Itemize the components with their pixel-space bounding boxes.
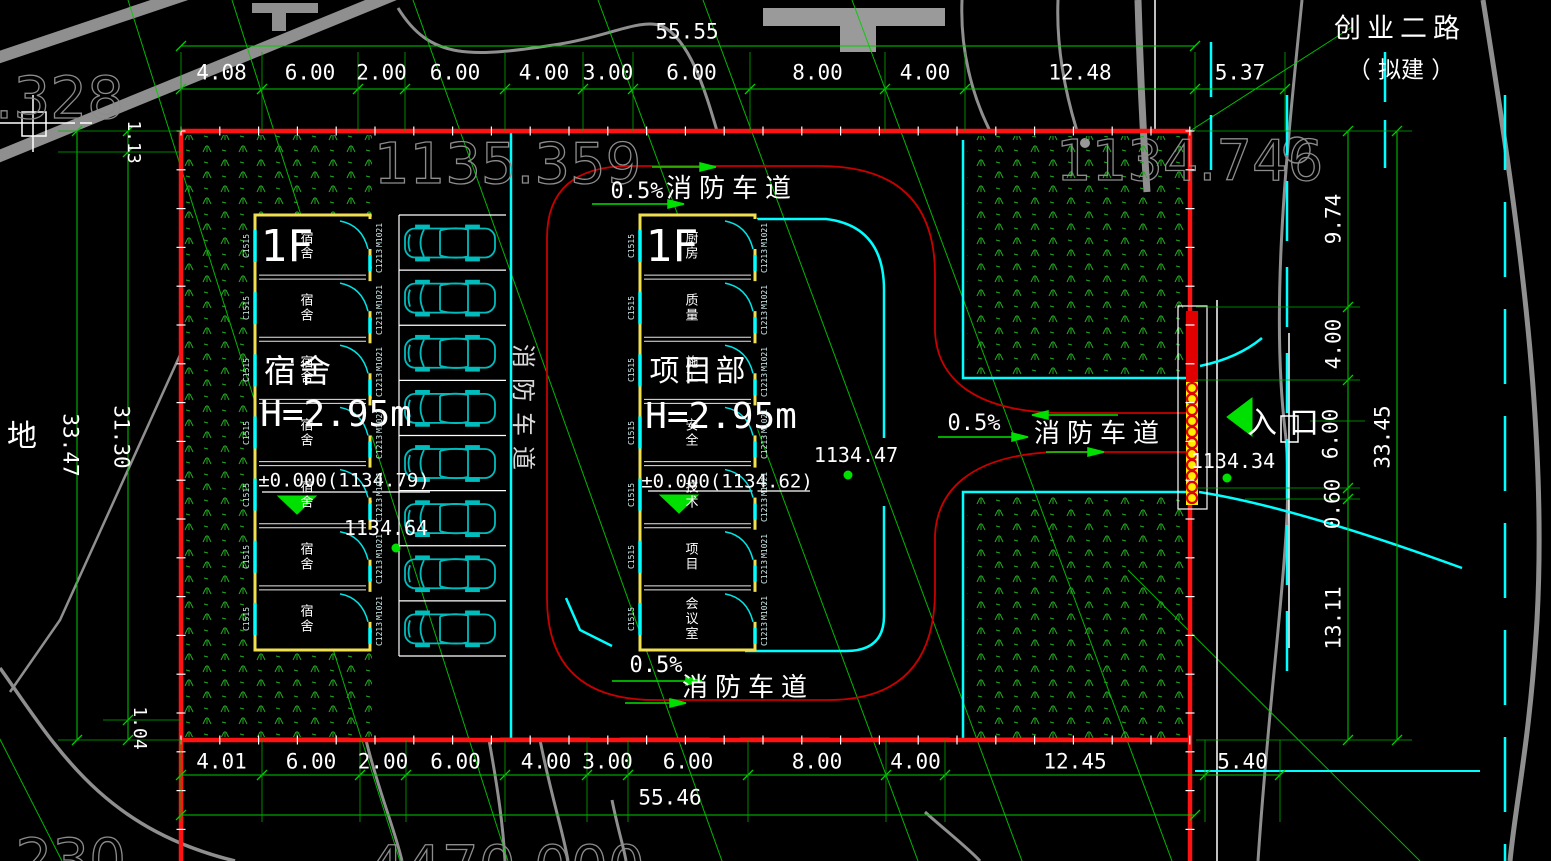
door-gap	[753, 405, 758, 435]
survey-t-icon	[252, 3, 318, 13]
door-gap	[368, 343, 373, 373]
door-gap	[368, 281, 373, 311]
contour-label-n: 1135.359	[374, 132, 641, 197]
parked-car-icon	[405, 336, 495, 371]
door-gap	[753, 530, 758, 560]
entrance-arrow-icon	[1227, 398, 1252, 436]
parked-car-icon	[405, 226, 495, 261]
contour-label-nw: 5.328	[0, 64, 124, 132]
door-gap	[753, 281, 758, 311]
contour-label-ne: 1134.746	[1056, 129, 1323, 194]
survey-t-icon	[763, 8, 945, 26]
parked-car-icon	[405, 556, 495, 591]
door-gap	[368, 592, 373, 622]
dorm-building	[255, 215, 370, 650]
office-building	[640, 215, 755, 650]
door-gap	[753, 343, 758, 373]
cad-drawing-layer: 5.328 1135.359 1134.746 5.230 4470.000	[0, 0, 1551, 861]
parked-car-icon	[405, 391, 495, 426]
door-gap	[368, 468, 373, 498]
contour-label-sw: 5.230	[0, 826, 126, 861]
door-gap	[753, 468, 758, 498]
parked-car-icon	[405, 501, 495, 536]
door-gap	[368, 405, 373, 435]
contour-label-s: 4470.000	[368, 833, 645, 861]
door-gap	[368, 530, 373, 560]
parked-car-icon	[405, 281, 495, 316]
door-gap	[368, 219, 373, 249]
site-plan-canvas[interactable]: 5.328 1135.359 1134.746 5.230 4470.000 创…	[0, 0, 1551, 861]
door-gap	[753, 219, 758, 249]
parked-car-icon	[405, 611, 495, 646]
door-gap	[753, 592, 758, 622]
parked-car-icon	[405, 446, 495, 481]
